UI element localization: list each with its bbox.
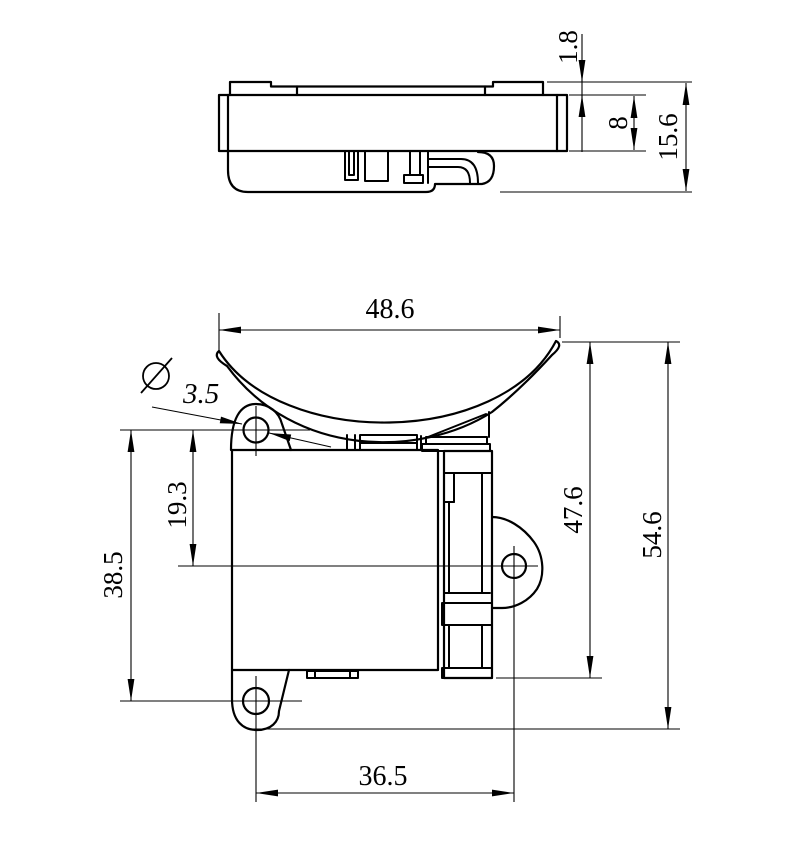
dim-overall-height-front-label: 54.6: [637, 511, 667, 558]
left-tab-outline: [230, 82, 297, 95]
dim-saddle-to-foot-label: 47.6: [558, 486, 588, 533]
diameter-symbol-icon: [141, 358, 172, 393]
upper-boss-outline: [231, 404, 291, 450]
lower-shell-outline: [228, 151, 494, 192]
top-view-dimensions: 1.8 8 15.6: [500, 30, 692, 192]
top-view-part-details: [345, 151, 478, 183]
front-view-part-outline: [217, 341, 559, 730]
top-profile-view: 1.8 8 15.6: [219, 30, 692, 192]
front-view-dimensions: 48.6 3.5 19.3 38.5 47.6 54.6 36.5: [98, 294, 680, 802]
dim-flange-thickness-label: 1.8: [553, 30, 583, 64]
bar-body-outline: [219, 95, 567, 151]
drawing-sheet: 1.8 8 15.6: [0, 0, 800, 860]
dim-body-height-label: 8: [603, 116, 633, 130]
front-view: 48.6 3.5 19.3 38.5 47.6 54.6 36.5: [98, 294, 680, 802]
top-view-part-outline: [219, 82, 567, 192]
latch-foot: [404, 175, 423, 183]
hook-inner-curve: [428, 167, 470, 183]
leader-line: [269, 433, 331, 447]
dim-saddle-width-label: 48.6: [366, 294, 415, 325]
lower-left-lug-outline: [232, 670, 289, 730]
dim-hole-spacing-193-label: 19.3: [162, 481, 192, 528]
rail-block: [442, 603, 492, 625]
right-lug-outline: [492, 517, 542, 608]
slot-inner-wall: [349, 151, 354, 175]
dim-hole-spacing-365-label: 36.5: [359, 761, 408, 792]
dim-overall-height-top-label: 15.6: [653, 113, 683, 160]
front-view-part-details: [307, 412, 492, 678]
slot-outline: [365, 151, 388, 181]
right-tab-outline: [485, 82, 543, 95]
technical-drawing-canvas: 1.8 8 15.6: [0, 0, 800, 860]
dim-hole-spacing-385-label: 38.5: [98, 551, 128, 598]
right-rail-outline: [444, 451, 492, 678]
main-body-outline: [232, 450, 438, 670]
stack-plate: [426, 437, 487, 444]
rail-foot: [442, 668, 492, 678]
dim-hole-diameter-label: 3.5: [182, 378, 219, 410]
